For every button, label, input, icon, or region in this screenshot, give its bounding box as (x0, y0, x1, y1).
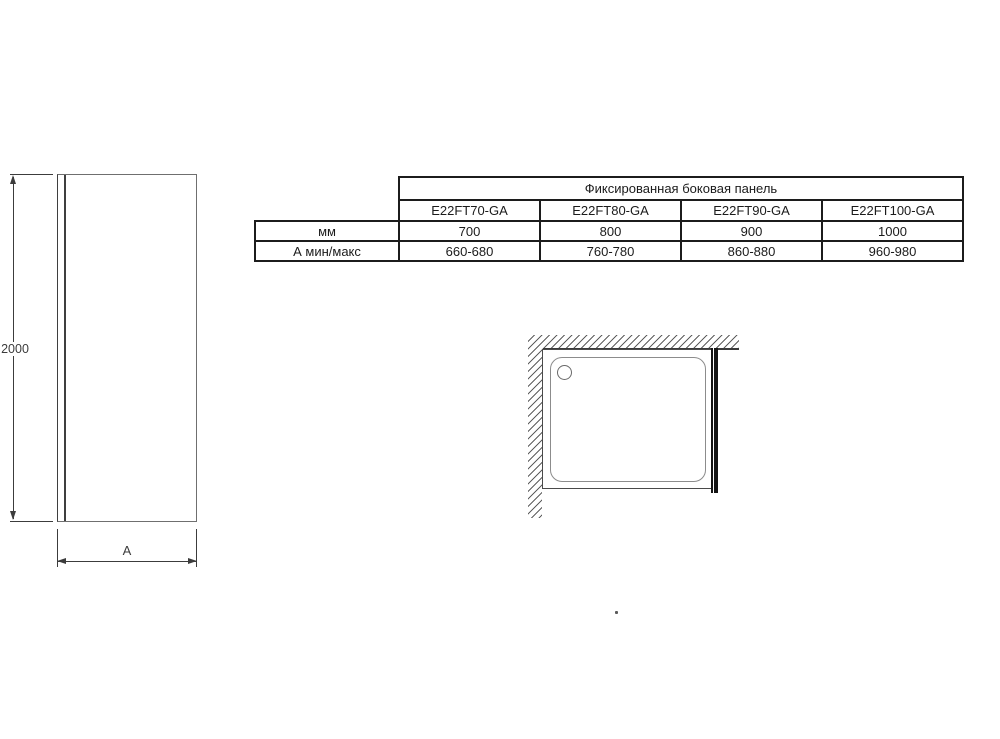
technical-drawing-canvas: 2000 A Фиксированная боковая панель (0, 0, 1000, 739)
value-cell: 700 (399, 221, 540, 241)
width-dim-label: A (97, 544, 157, 558)
value-cell: 860-880 (681, 241, 822, 261)
model-cell: E22FT80-GA (540, 200, 681, 221)
panel-glass-edge-line (64, 175, 66, 521)
value-cell: 1000 (822, 221, 963, 241)
table-row: Фиксированная боковая панель (255, 177, 963, 200)
wall-hatch-top (528, 335, 739, 349)
height-dim-bottom-tick (10, 521, 53, 522)
spec-table: Фиксированная боковая панель E22FT70-GA … (254, 176, 964, 262)
value-cell: 760-780 (540, 241, 681, 261)
height-dim-top-tick (10, 174, 53, 175)
value-cell: 660-680 (399, 241, 540, 261)
model-cell: E22FT90-GA (681, 200, 822, 221)
panel-front-outline (57, 174, 197, 522)
empty-corner-cell (255, 177, 399, 200)
height-dim-label: 2000 (0, 342, 30, 356)
height-dim-arrow-down-icon (10, 511, 16, 520)
empty-corner-cell (255, 200, 399, 221)
model-cell: E22FT70-GA (399, 200, 540, 221)
row-label-cell: мм (255, 221, 399, 241)
height-dim-arrow-up-icon (10, 175, 16, 184)
row-label-cell: А мин/макс (255, 241, 399, 261)
value-cell: 960-980 (822, 241, 963, 261)
value-cell: 800 (540, 221, 681, 241)
width-dim-line (58, 561, 197, 562)
wall-hatch-left (528, 335, 542, 518)
fixed-panel-plan-bar (711, 348, 718, 493)
table-row: E22FT70-GA E22FT80-GA E22FT90-GA E22FT10… (255, 200, 963, 221)
value-cell: 900 (681, 221, 822, 241)
width-dim-arrow-right-icon (188, 558, 197, 564)
table-title-cell: Фиксированная боковая панель (399, 177, 963, 200)
shower-tray (550, 357, 706, 482)
table-row: мм 700 800 900 1000 (255, 221, 963, 241)
drain-circle (557, 365, 572, 380)
stray-dot (615, 611, 618, 614)
model-cell: E22FT100-GA (822, 200, 963, 221)
table-row: А мин/макс 660-680 760-780 860-880 960-9… (255, 241, 963, 261)
width-dim-arrow-left-icon (57, 558, 66, 564)
